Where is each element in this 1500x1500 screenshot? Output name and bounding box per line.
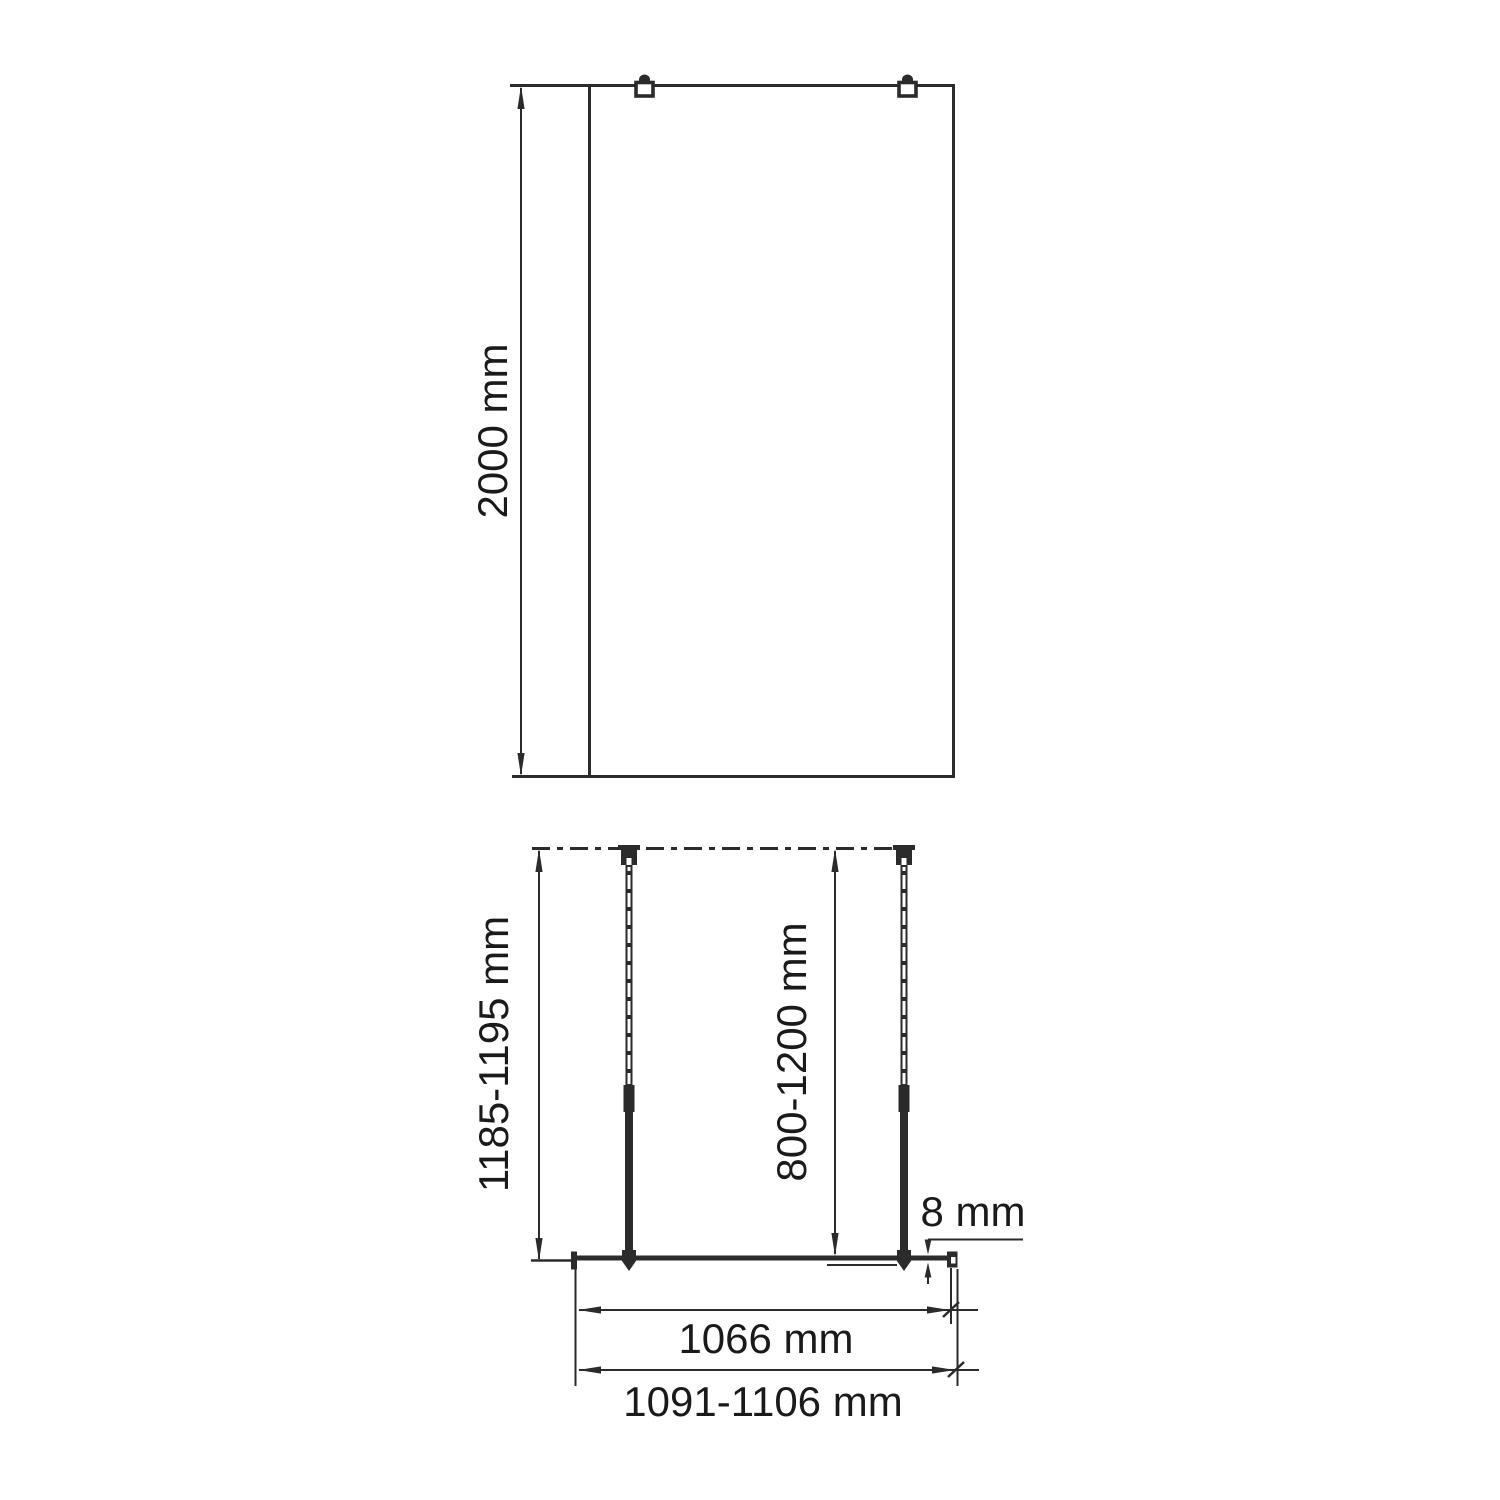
arrow-down-icon	[535, 1238, 542, 1261]
arrow-down-icon	[517, 753, 524, 776]
support-rod-right-icon	[893, 845, 915, 1271]
wall-distance-label: 800-1200 mm	[768, 922, 815, 1181]
plan-glass-panel	[577, 1256, 948, 1261]
plan-right-end-bracket-notch	[951, 1257, 956, 1264]
arrow-up-icon	[535, 849, 542, 872]
support-rod-left-icon	[618, 845, 640, 1271]
glass-thickness-label: 8 mm	[921, 1188, 1026, 1235]
plan-view: 1185-1195 mm 800-1200 mm 8 mm	[470, 845, 1026, 1425]
shower-panel-dimension-drawing: 2000 mm 1185-1195 mm 800-1200 mm	[0, 0, 1500, 1500]
glass-thickness-dimension: 8 mm	[921, 1188, 1026, 1284]
front-height-label: 2000 mm	[469, 343, 516, 518]
arrow-down-icon	[925, 1240, 932, 1255]
arrow-up-icon	[925, 1263, 932, 1278]
glass-width-label: 1066 mm	[678, 1315, 853, 1362]
bar-length-label: 1185-1195 mm	[470, 916, 517, 1192]
height-dimension: 2000 mm	[469, 86, 525, 776]
arrow-up-icon	[831, 849, 838, 872]
diagram-canvas: 2000 mm 1185-1195 mm 800-1200 mm	[0, 0, 1500, 1500]
wall-bracket-left-icon	[636, 75, 653, 97]
glass-width-dimension: 1066 mm	[578, 1302, 978, 1362]
arrow-down-icon	[831, 1233, 838, 1256]
arrow-up-icon	[517, 86, 524, 109]
overall-width-dimension: 1091-1106 mm	[578, 1362, 979, 1425]
arrow-left-icon	[578, 1306, 601, 1313]
overall-width-label: 1091-1106 mm	[623, 1378, 902, 1425]
bar-length-dimension: 1185-1195 mm	[470, 849, 573, 1261]
wall-bracket-right-icon	[899, 75, 916, 97]
front-view: 2000 mm	[469, 75, 955, 778]
arrow-left-icon	[578, 1366, 601, 1373]
wall-distance-dimension: 800-1200 mm	[768, 849, 897, 1265]
